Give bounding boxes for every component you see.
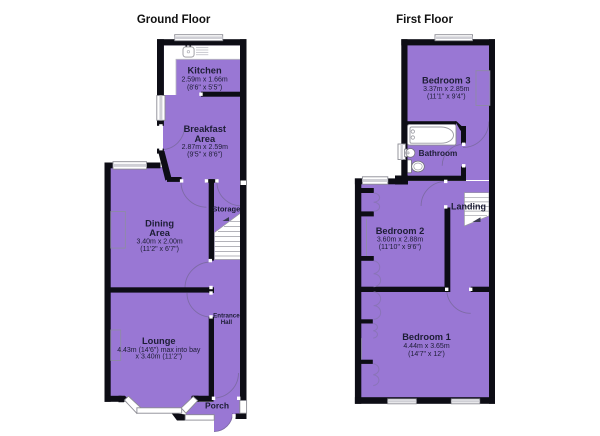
svg-text:Hall: Hall (221, 319, 233, 326)
svg-text:Breakfast: Breakfast (184, 124, 226, 134)
svg-text:Area: Area (149, 228, 171, 238)
svg-text:(11'1" x 9'4"): (11'1" x 9'4") (427, 94, 466, 101)
svg-text:Bedroom 1: Bedroom 1 (402, 332, 451, 342)
svg-text:Ground Floor: Ground Floor (137, 14, 211, 26)
svg-text:2.87m x 2.59m: 2.87m x 2.59m (182, 144, 228, 151)
svg-text:3.37m x 2.85m: 3.37m x 2.85m (423, 86, 469, 93)
svg-text:Lounge: Lounge (142, 336, 176, 346)
svg-text:Bedroom 2: Bedroom 2 (376, 226, 425, 236)
svg-text:Kitchen: Kitchen (188, 66, 222, 76)
svg-text:3.40m x 2.00m: 3.40m x 2.00m (136, 238, 182, 245)
svg-text:(11'2" x 6'7"): (11'2" x 6'7") (140, 246, 179, 253)
svg-text:Dining: Dining (145, 218, 174, 228)
svg-text:Area: Area (194, 134, 216, 144)
svg-text:(11'10" x 9'6"): (11'10" x 9'6") (379, 244, 422, 251)
svg-text:x 3.40m (11'2"): x 3.40m (11'2") (136, 354, 183, 361)
svg-text:Porch: Porch (205, 401, 229, 411)
svg-text:4.44m x 3.65m: 4.44m x 3.65m (403, 343, 449, 350)
svg-text:(8'6" x 5'5"): (8'6" x 5'5") (187, 84, 222, 91)
svg-text:(9'5" x 8'6"): (9'5" x 8'6") (187, 152, 222, 159)
svg-text:(14'7" x 12'): (14'7" x 12') (408, 351, 445, 358)
svg-text:Landing: Landing (451, 201, 486, 211)
svg-text:3.60m x 2.88m: 3.60m x 2.88m (377, 236, 423, 243)
svg-text:Bedroom 3: Bedroom 3 (422, 75, 471, 85)
svg-text:Bathroom: Bathroom (419, 149, 458, 158)
svg-text:2.59m x 1.66m: 2.59m x 1.66m (181, 77, 227, 84)
svg-text:First Floor: First Floor (396, 14, 453, 26)
svg-text:Storage: Storage (212, 204, 240, 213)
